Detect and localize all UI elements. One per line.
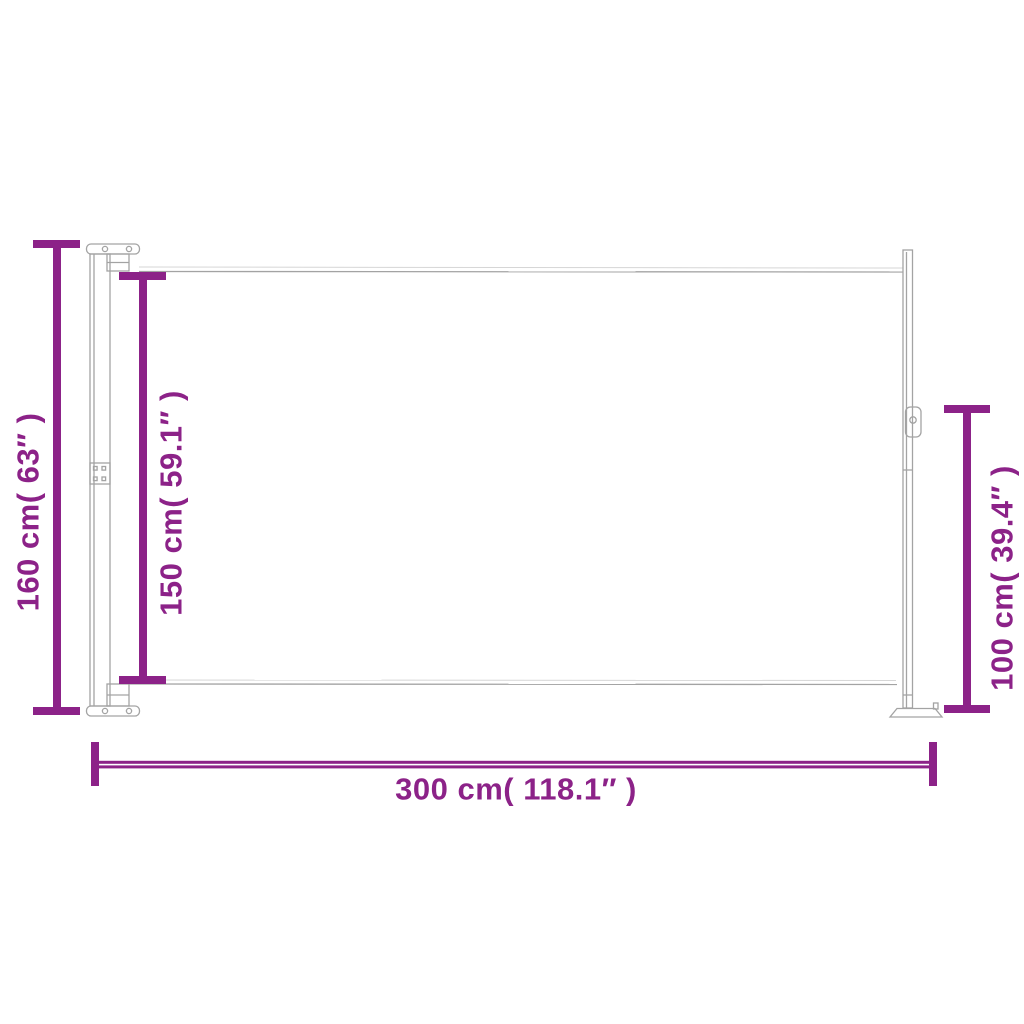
- mount-screw: [102, 477, 106, 481]
- fabric-top-edge: [139, 272, 903, 273]
- right-post: [890, 250, 942, 717]
- total-height-label: 160 cm( 63″ ): [11, 413, 46, 612]
- dimension-stem: [53, 244, 61, 711]
- fabric-bottom-edge: [129, 684, 897, 685]
- fabric-bottom-edge-faint: [129, 680, 896, 681]
- product-line-drawing: [87, 244, 943, 717]
- diagram-svg: 160 cm( 63″ ) 150 cm( 59.1″ ) 100 cm( 39…: [0, 0, 1024, 1024]
- mount-screw: [94, 477, 98, 481]
- dimension-tick: [33, 707, 80, 715]
- dimension-stem: [139, 276, 147, 680]
- dimension-tick: [119, 676, 166, 684]
- bottom-cap-screw: [126, 708, 131, 713]
- fabric-height-label: 150 cm( 59.1″ ): [154, 390, 189, 616]
- product-dimension-diagram: 160 cm( 63″ ) 150 cm( 59.1″ ) 100 cm( 39…: [0, 0, 1024, 1024]
- mount-screw: [102, 467, 106, 471]
- dimension-stem-upper: [95, 761, 933, 764]
- dimension-tick: [91, 742, 99, 786]
- handle-latch: [906, 407, 922, 437]
- top-cap-screw: [126, 246, 131, 251]
- post-height-label: 100 cm( 39.4″ ): [985, 465, 1020, 691]
- fabric-top-edge-faint: [139, 267, 903, 268]
- bottom-cap-screw: [102, 708, 107, 713]
- dimension-stem: [963, 409, 971, 709]
- mount-screw: [94, 467, 98, 471]
- dimension-tick: [929, 742, 937, 786]
- dimension-labels: 160 cm( 63″ ) 150 cm( 59.1″ ) 100 cm( 39…: [11, 390, 1020, 806]
- dimension-tick: [944, 705, 990, 713]
- top-cap-screw: [102, 246, 107, 251]
- dimension-post-height: [944, 405, 990, 713]
- fabric-screen: [129, 267, 903, 685]
- foot-base-plate: [890, 709, 942, 718]
- dimension-stem-lower: [95, 765, 933, 768]
- total-width-label: 300 cm( 118.1″ ): [395, 772, 637, 807]
- left-cassette-post: [87, 244, 140, 716]
- right-post-body: [903, 250, 913, 708]
